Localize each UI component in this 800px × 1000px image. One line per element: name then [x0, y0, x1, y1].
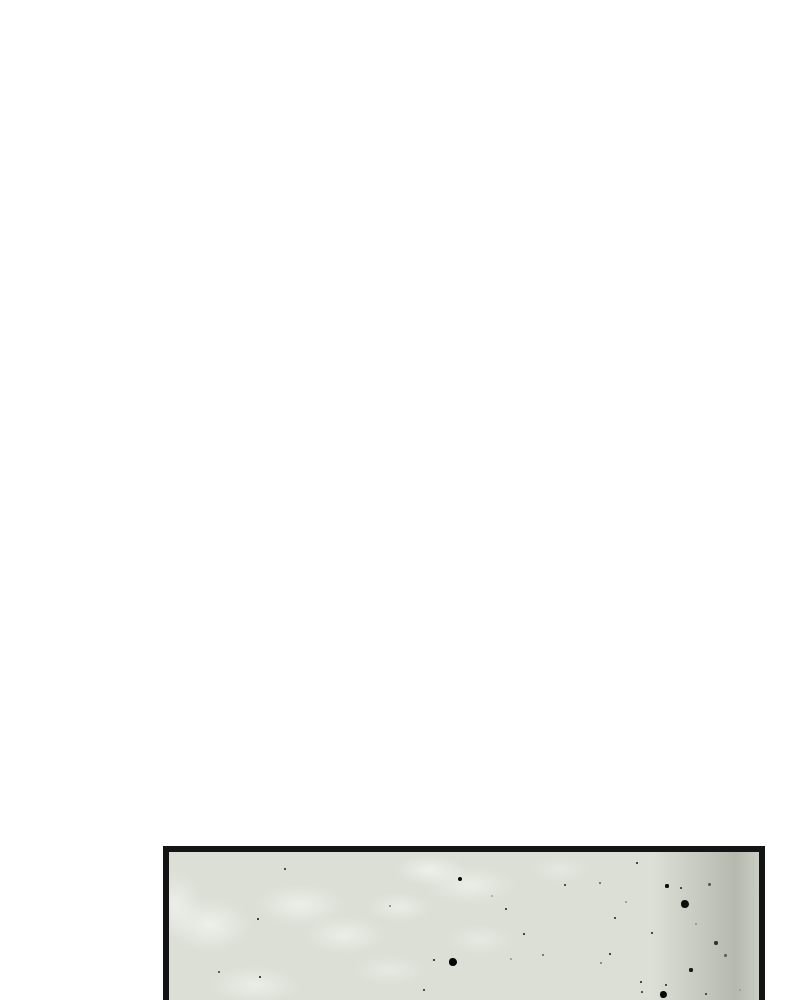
- fog-highlight: [365, 891, 433, 923]
- ink-speckle: [641, 991, 643, 993]
- ink-speckle: [695, 923, 696, 924]
- panel-wall-texture: [169, 852, 759, 1000]
- ink-speckle: [505, 908, 507, 910]
- ink-speckle: [218, 971, 220, 973]
- comic-panel: [163, 846, 765, 1000]
- ink-speckle: [651, 932, 652, 933]
- ink-speckle: [714, 941, 717, 944]
- fog-highlight: [446, 924, 514, 956]
- ink-speckle: [449, 958, 457, 966]
- fog-highlight: [530, 856, 590, 884]
- fog-highlight: [209, 965, 301, 1000]
- fog-highlight: [254, 883, 346, 927]
- ink-speckle: [523, 933, 525, 935]
- ink-speckle: [636, 862, 638, 864]
- fog-highlight: [394, 854, 466, 886]
- ink-speckle: [640, 981, 642, 983]
- ink-speckle: [625, 901, 626, 902]
- ink-speckle: [705, 993, 707, 995]
- ink-speckle: [564, 884, 566, 886]
- ink-speckle: [284, 868, 286, 870]
- ink-speckle: [458, 877, 463, 882]
- fog-highlight: [169, 897, 252, 953]
- ink-speckle: [739, 989, 741, 991]
- ink-speckle: [660, 991, 667, 998]
- ink-speckle: [680, 887, 682, 889]
- ink-speckle: [542, 954, 543, 955]
- fog-highlight: [424, 865, 516, 905]
- fog-highlight: [352, 954, 428, 986]
- ink-speckle: [609, 953, 611, 955]
- ink-speckle: [510, 958, 512, 960]
- fog-highlight: [303, 915, 387, 955]
- ink-speckle: [665, 984, 667, 986]
- ink-speckle: [389, 905, 390, 906]
- ink-speckle: [724, 954, 727, 957]
- ink-speckle: [689, 968, 692, 971]
- ink-speckle: [708, 883, 711, 886]
- ink-speckle: [600, 962, 601, 963]
- fog-highlight: [169, 871, 203, 939]
- ink-speckle: [259, 976, 262, 979]
- ink-speckle: [599, 882, 601, 884]
- ink-speckle: [433, 959, 435, 961]
- ink-speckle: [423, 989, 425, 991]
- ink-speckle: [257, 918, 259, 920]
- page-background: [0, 0, 800, 1000]
- ink-speckle: [665, 884, 668, 887]
- ink-speckle: [681, 900, 690, 909]
- ink-speckle: [491, 895, 493, 897]
- ink-speckle: [614, 917, 616, 919]
